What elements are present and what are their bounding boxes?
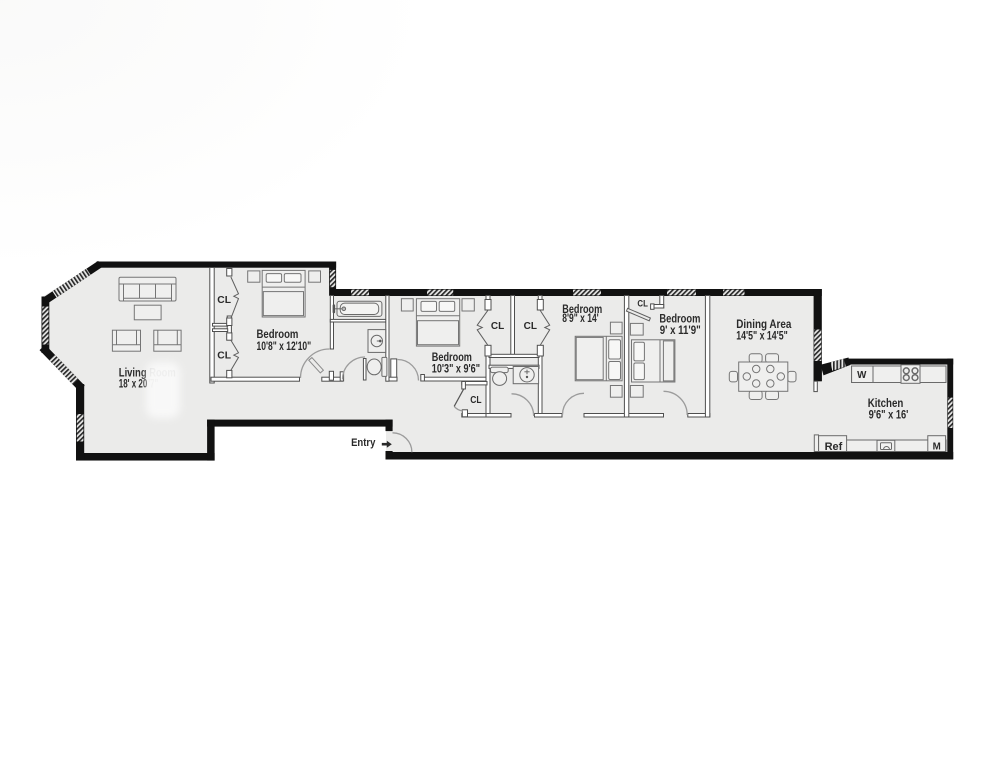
- svg-text:10'8" x 12'10": 10'8" x 12'10": [257, 340, 312, 353]
- svg-text:CL: CL: [637, 299, 648, 309]
- svg-text:9' x 11'9": 9' x 11'9": [660, 324, 701, 337]
- svg-text:CL: CL: [217, 350, 231, 361]
- svg-text:M: M: [933, 441, 941, 452]
- svg-text:10'3" x 9'6": 10'3" x 9'6": [432, 362, 480, 375]
- svg-text:CL: CL: [470, 395, 481, 406]
- svg-text:14'5" x 14'5": 14'5" x 14'5": [736, 330, 788, 343]
- svg-text:CL: CL: [491, 321, 504, 332]
- svg-text:CL: CL: [524, 321, 537, 332]
- svg-text:W: W: [857, 370, 867, 381]
- svg-text:CL: CL: [217, 295, 231, 306]
- svg-text:8'9" x 14': 8'9" x 14': [562, 312, 599, 325]
- svg-text:Entry: Entry: [351, 437, 376, 449]
- svg-text:9'6" x 16': 9'6" x 16': [869, 409, 909, 422]
- svg-text:Ref: Ref: [825, 441, 843, 453]
- svg-text:18' x 20: 18' x 20: [119, 378, 148, 391]
